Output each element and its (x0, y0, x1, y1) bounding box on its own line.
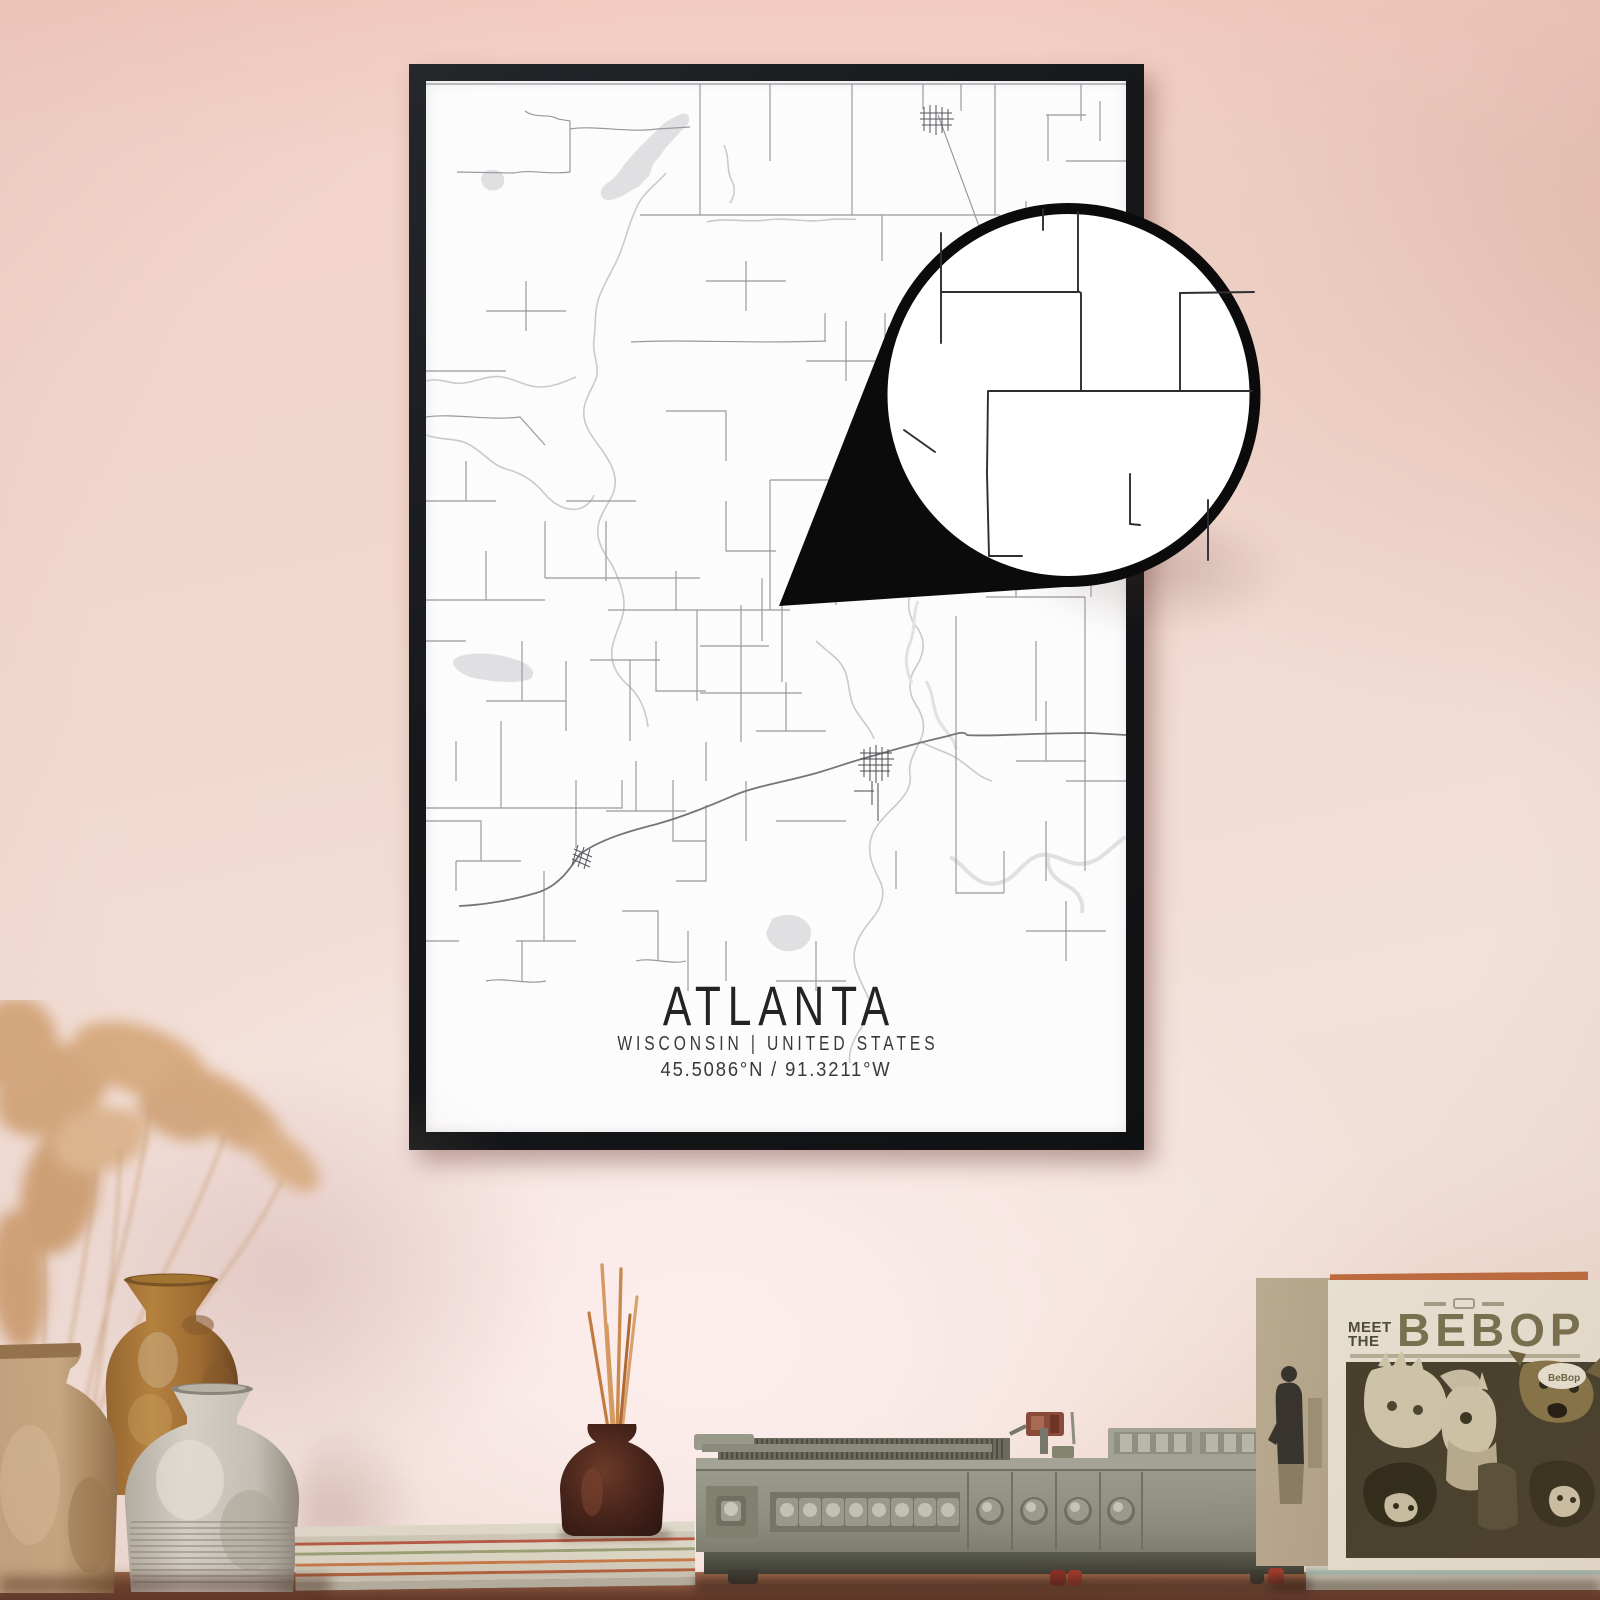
svg-text:THE: THE (1348, 1333, 1380, 1350)
svg-text:BeBop: BeBop (1548, 1373, 1580, 1384)
svg-text:BEBOP: BEBOP (1397, 1304, 1586, 1356)
